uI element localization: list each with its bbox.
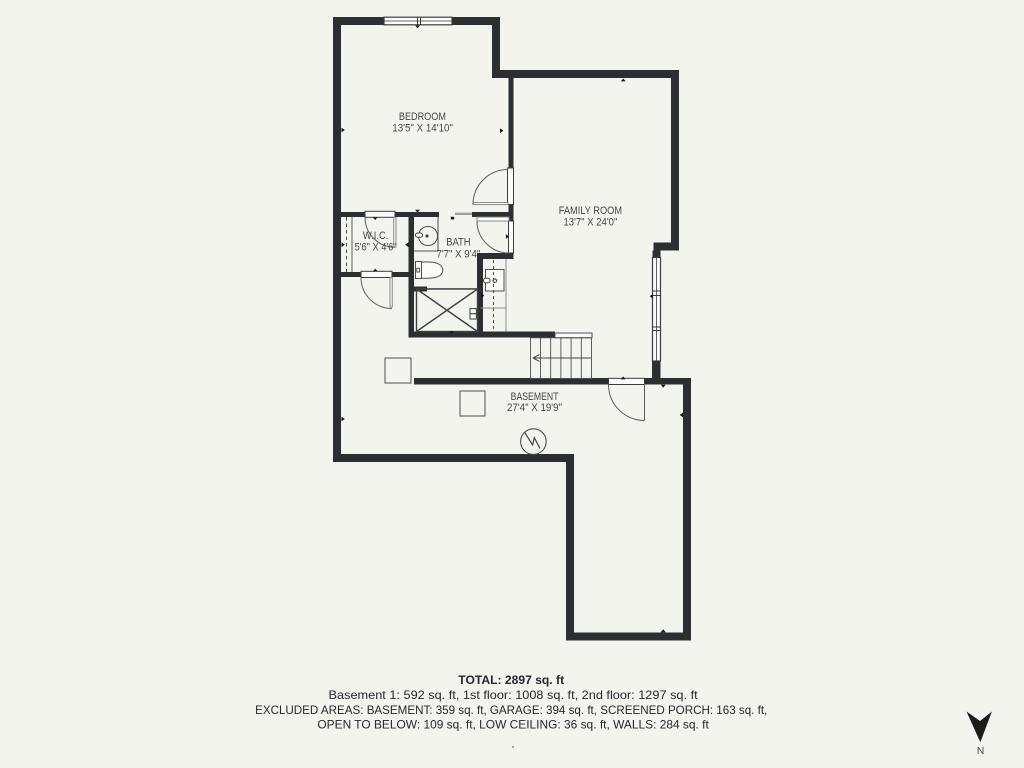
svg-text:FAMILY ROOM: FAMILY ROOM	[559, 205, 622, 217]
svg-text:OPEN TO BELOW: 109 sq. ft, LOW: OPEN TO BELOW: 109 sq. ft, LOW CEILING: …	[317, 718, 709, 732]
svg-text:5'6" X 4'6": 5'6" X 4'6"	[355, 241, 397, 253]
svg-text:BATH: BATH	[446, 237, 470, 249]
svg-text:7'7" X 9'4": 7'7" X 9'4"	[436, 248, 480, 260]
svg-text:BEDROOM: BEDROOM	[399, 111, 446, 123]
svg-text:N: N	[977, 746, 984, 757]
svg-text:TOTAL: 2897 sq. ft: TOTAL: 2897 sq. ft	[458, 673, 564, 687]
svg-text:Basement 1: 592 sq. ft, 1st fl: Basement 1: 592 sq. ft, 1st floor: 1008 …	[329, 688, 699, 702]
svg-text:27'4" X 19'9": 27'4" X 19'9"	[507, 402, 562, 414]
svg-text:W.I.C.: W.I.C.	[363, 230, 389, 242]
svg-text:13'5" X 14'10": 13'5" X 14'10"	[392, 123, 453, 135]
svg-text:EXCLUDED AREAS: BASEMENT: 359: EXCLUDED AREAS: BASEMENT: 359 sq. ft, GA…	[255, 703, 767, 717]
svg-text:BASEMENT: BASEMENT	[511, 391, 559, 403]
svg-text:13'7" X 24'0": 13'7" X 24'0"	[563, 217, 617, 229]
